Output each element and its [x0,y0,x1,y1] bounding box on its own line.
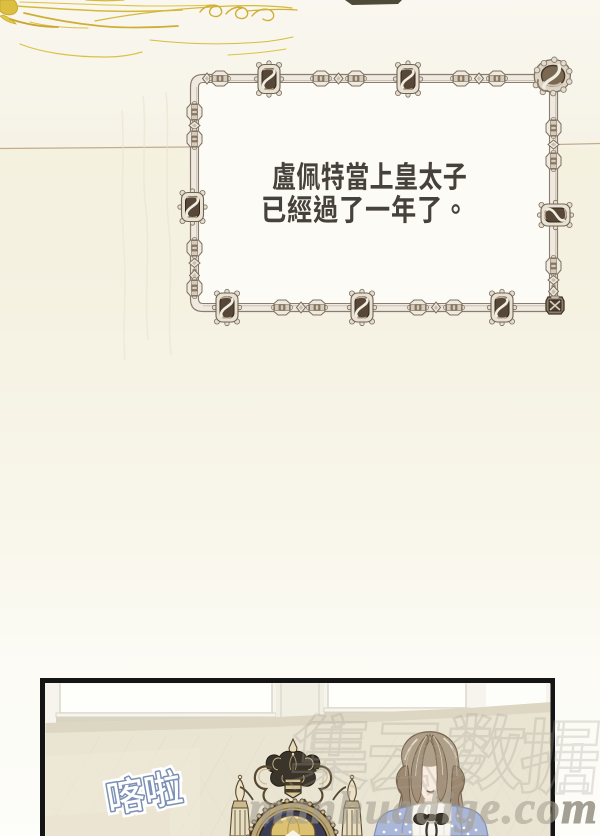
svg-text:manhuadige.com: manhuadige.com [249,782,598,833]
